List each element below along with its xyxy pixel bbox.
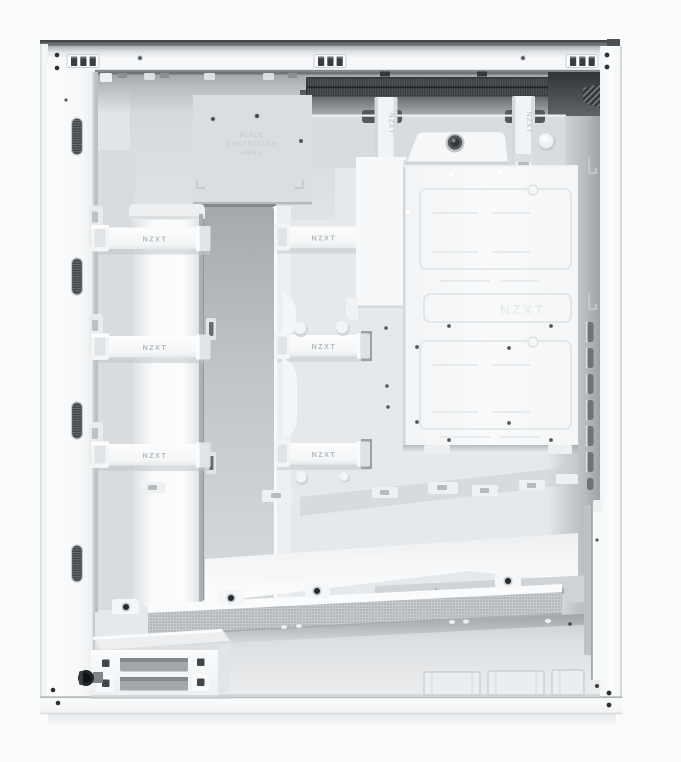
svg-text:PLACE: PLACE [240, 132, 265, 139]
svg-text:NZXT: NZXT [312, 236, 337, 243]
svg-text:NZXT: NZXT [525, 112, 532, 134]
svg-text:NZXT: NZXT [312, 344, 337, 351]
svg-text:NZXT: NZXT [312, 452, 337, 459]
svg-text:NZXT: NZXT [143, 237, 168, 244]
svg-text:NZXT: NZXT [500, 302, 546, 317]
svg-text:NZXT: NZXT [143, 453, 168, 460]
svg-text:NZXT: NZXT [143, 345, 168, 352]
svg-text:CONTROLLER: CONTROLLER [226, 141, 277, 148]
svg-text:NZXT: NZXT [388, 113, 395, 135]
svg-text:HERE: HERE [242, 150, 263, 157]
